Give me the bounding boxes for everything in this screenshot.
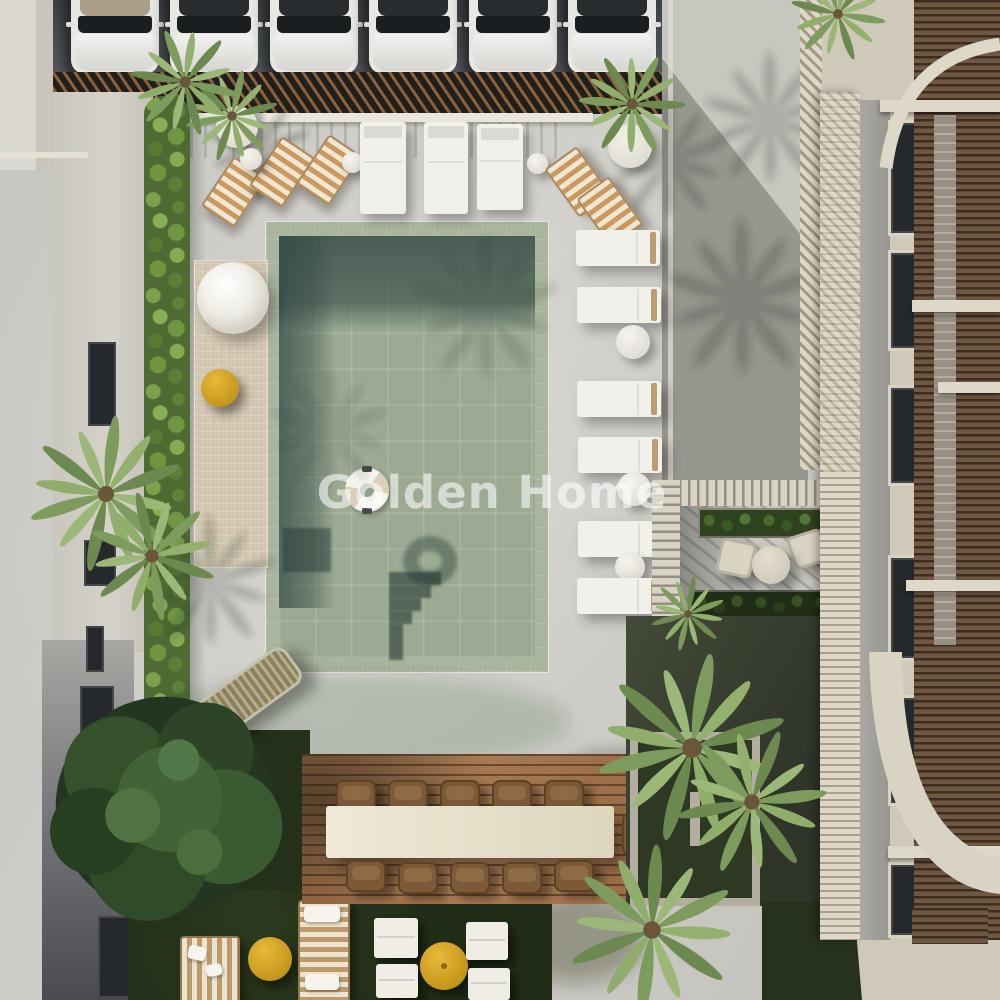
lawn-lounger [468, 968, 510, 1000]
facade-beam [938, 382, 1000, 393]
left-building-window [84, 540, 116, 586]
left-boundary-wall [36, 0, 53, 170]
dining-table [326, 806, 614, 858]
car-mirror [157, 22, 164, 27]
balcony-railing-chevron [800, 0, 822, 470]
car-mirror [66, 22, 73, 27]
lawn-lounger [376, 964, 418, 998]
roof-fascia [0, 152, 88, 158]
louver-fence [912, 908, 988, 944]
pool-water [279, 236, 535, 658]
facade-pilaster [934, 115, 956, 645]
poolside-lounger [578, 521, 662, 557]
lower-left-window [80, 686, 114, 742]
white-lounger [477, 124, 523, 210]
plant-pot [216, 106, 258, 148]
wood-louver-facade [914, 0, 1000, 940]
white-lounger [424, 122, 468, 214]
watermark-text: Golden Home [317, 466, 668, 519]
round-daybed [197, 262, 269, 334]
pool-steps-shadow [389, 611, 412, 624]
pool-steps-shadow [389, 598, 421, 611]
side-table [240, 148, 262, 170]
pool-steps-shadow [389, 624, 403, 660]
parked-car [369, 0, 457, 74]
lawn-lounger [466, 922, 508, 960]
walkway-curb [668, 0, 673, 488]
parked-car [469, 0, 557, 74]
car-hood [75, 34, 155, 71]
white-lounger [360, 122, 406, 214]
lounge-chair [715, 537, 758, 580]
dining-chair [346, 860, 386, 892]
poolside-lounger [577, 578, 661, 614]
lawn-lounger [374, 918, 418, 958]
side-table [616, 325, 650, 359]
lower-left-window [86, 626, 104, 672]
dining-chair [502, 862, 542, 894]
hedge-strip [144, 96, 190, 748]
float-ring-shadow [403, 536, 457, 586]
parked-car [170, 0, 258, 74]
pool-steps-shadow [389, 585, 431, 598]
dining-chair [398, 862, 438, 894]
plant-pot [608, 124, 652, 168]
facade-grey-panel [860, 100, 890, 940]
lounge-table [752, 546, 790, 584]
yellow-pouf [201, 369, 239, 407]
concrete-planter [630, 732, 760, 906]
left-boundary-wall [0, 0, 36, 170]
daybed-pillow [305, 974, 339, 990]
parked-car [568, 0, 656, 74]
facade-beam [880, 100, 1000, 112]
aerial-courtyard-rendering: Golden Home [0, 0, 1000, 1000]
facade-beam [888, 846, 1000, 858]
pool-bench [283, 528, 331, 572]
dining-chair [554, 860, 594, 892]
dining-chair [450, 862, 490, 894]
balcony-louver-highlight [820, 92, 860, 472]
poolside-lounger [577, 381, 661, 417]
lower-left-window [98, 916, 130, 998]
yellow-parasol [420, 942, 468, 990]
parked-car [270, 0, 358, 74]
daybed-pillow [304, 906, 340, 922]
facade-beam [906, 580, 1000, 591]
yellow-side-table [248, 937, 292, 981]
poolside-lounger [577, 287, 661, 323]
car-windshield [78, 16, 152, 33]
facade-beam [912, 300, 1000, 312]
parasol-tip [441, 963, 447, 969]
left-building-window [88, 342, 116, 426]
car-open-roof [80, 0, 150, 16]
parked-car [71, 0, 159, 74]
poolside-lounger [576, 230, 660, 266]
